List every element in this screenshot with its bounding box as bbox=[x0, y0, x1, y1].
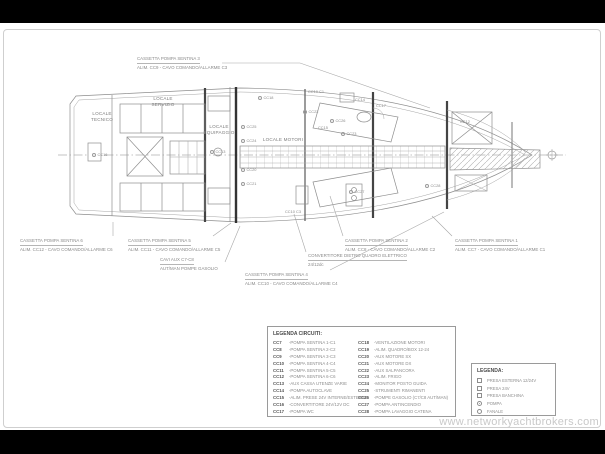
legend-circuits-column-2: CC18-VENTILAZIONE MOTORICC19-ALIM. QUADR… bbox=[358, 340, 454, 416]
circuit-code: CC16 bbox=[273, 402, 289, 407]
marker-label: CC18 bbox=[264, 95, 274, 100]
marker-circle-icon bbox=[303, 110, 307, 114]
circuit-code: CC21 bbox=[358, 361, 374, 366]
circuit-description: -POMPA SENTINA 2-C2 bbox=[289, 347, 335, 352]
circuit-description: -MONITOR POSTO GUIDA bbox=[374, 381, 427, 386]
callout-cavi-aux: CAVI AUX C7-C8 AUT/MAN POMPE GASOLIO bbox=[160, 256, 218, 273]
callout-sentina-1: CASSETTA POMPA SENTINA 1 ALIM. CC7 - CAV… bbox=[455, 237, 545, 254]
circuit-description: -ALIM. PRESE 24V INTERNE/ESTERNE bbox=[289, 395, 368, 400]
marker-circle-icon bbox=[241, 139, 245, 143]
callout-sentina-4: CASSETTA POMPA SENTINA 4 ALIM. CC10 - CA… bbox=[245, 271, 338, 288]
legend-circuit-row: CC7-POMPA SENTINA 1-C1 bbox=[273, 340, 353, 347]
circuit-code: CC20 bbox=[358, 354, 374, 359]
legend-circuits-title: LEGENDA CIRCUITI: bbox=[273, 331, 322, 337]
circuit-marker: CC18 bbox=[258, 95, 273, 100]
callout-title: CASSETTA POMPA SENTINA 4 bbox=[245, 271, 308, 280]
marker-label: CC15 bbox=[318, 125, 328, 130]
circuit-code: CC11 bbox=[273, 368, 289, 373]
circuit-description: -AUX CASSA UTENZE VARIE bbox=[289, 381, 347, 386]
circuit-description: -VENTILAZIONE MOTORI bbox=[374, 340, 425, 345]
circuit-description: -ALIM. FRIGO bbox=[374, 374, 401, 379]
watermark-text: www.networkyachtbrokers.com bbox=[439, 416, 599, 428]
circuit-code: CC13 bbox=[273, 381, 289, 386]
legend-symbols-rows: PRESA ESTERNA 12/24VPRESA 24VPRESA BANCH… bbox=[477, 377, 553, 415]
circuit-description: -AUX SALPANCORA bbox=[374, 368, 415, 373]
circuit-marker: CC28 bbox=[425, 183, 440, 188]
circuit-code: CC14 bbox=[273, 388, 289, 393]
circuit-code: CC17 bbox=[273, 409, 289, 414]
marker-circle-icon bbox=[349, 190, 353, 194]
circuit-marker: CC25 bbox=[241, 124, 256, 129]
square-symbol-icon bbox=[477, 378, 482, 383]
legend-symbols-title: LEGENDA: bbox=[477, 368, 503, 374]
marker-label: CC27 bbox=[355, 189, 365, 194]
room-label-locale-equipaggio: LOCALE EQUIPAGGIO bbox=[200, 124, 238, 136]
circuit-description: -POMPA WC bbox=[289, 409, 314, 414]
legend-circuit-row: CC17-POMPA WC bbox=[273, 409, 353, 416]
circuit-description: -AUX MOTORE DX bbox=[374, 361, 411, 366]
legend-symbol-row: PRESA BANCHINA bbox=[477, 392, 553, 400]
circuit-description: -POMPA SENTINA 1-C1 bbox=[289, 340, 335, 345]
legend-circuit-row: CC18-VENTILAZIONE MOTORI bbox=[358, 340, 454, 347]
circuit-description: -POMPE GASOLIO (C7/C8 AUT/MAN) bbox=[374, 395, 448, 400]
marker-circle-icon bbox=[92, 153, 96, 157]
circuit-marker: CC17 bbox=[376, 103, 386, 108]
marker-label: CC16 bbox=[98, 152, 108, 157]
legend-symbol-row: POMPA bbox=[477, 400, 553, 408]
circuit-marker: CC15 bbox=[318, 125, 328, 130]
legend-circuit-row: CC12-POMPA SENTINA 6-C6 bbox=[273, 374, 353, 381]
callout-title: CASSETTA POMPA SENTINA 1 bbox=[455, 237, 518, 246]
callout-title: CASSETTA POMPA SENTINA 6 bbox=[20, 237, 83, 246]
callout-detail: ALIM. CC10 - CAVO COMANDO/ALLARME C4 bbox=[245, 280, 338, 287]
callout-title: CASSETTA POMPA SENTINA 5 bbox=[128, 237, 191, 246]
callout-sentina-5: CASSETTA POMPA SENTINA 5 ALIM. CC11 - CA… bbox=[128, 237, 220, 254]
callout-title: CASSETTA POMPA SENTINA 3 bbox=[137, 55, 200, 64]
callout-sentina-3: CASSETTA POMPA SENTINA 3 ALIM. CC9 - CAV… bbox=[137, 55, 227, 72]
circle-symbol-icon bbox=[477, 409, 482, 414]
circuit-code: CC12 bbox=[273, 374, 289, 379]
legend-circuit-row: CC14-POMPA AUTOCLAVE bbox=[273, 388, 353, 395]
square-symbol-icon bbox=[477, 386, 482, 391]
circuit-code: CC9 bbox=[273, 354, 289, 359]
symbol-label: FANALE bbox=[487, 409, 503, 414]
circuit-marker: CC14 bbox=[355, 97, 365, 102]
callout-detail: ALIM. CC8 - CAVO COMANDO/ALLARME C2 bbox=[345, 246, 435, 253]
circuit-code: CC10 bbox=[273, 361, 289, 366]
marker-circle-icon bbox=[241, 168, 245, 172]
circuit-code: CC22 bbox=[358, 368, 374, 373]
legend-circuit-row: CC27-POMPA ANTINCENDIO bbox=[358, 402, 454, 409]
pump-symbol-icon bbox=[477, 401, 482, 406]
legend-circuit-row: CC25-STRUMENTI RIMANENTI bbox=[358, 388, 454, 395]
callout-sentina-6: CASSETTA POMPA SENTINA 6 ALIM. CC12 - CA… bbox=[20, 237, 113, 254]
circuit-code: CC27 bbox=[358, 402, 374, 407]
legend-circuit-row: CC19-ALIM. QUADRO/BOX 12-24 bbox=[358, 347, 454, 354]
callout-sentina-2: CASSETTA POMPA SENTINA 2 ALIM. CC8 - CAV… bbox=[345, 237, 435, 254]
legend-symbol-row: FANALE bbox=[477, 407, 553, 415]
circuit-marker: CC26 bbox=[330, 118, 345, 123]
marker-label: CC23 bbox=[347, 131, 357, 136]
circuit-description: -ALIM. QUADRO/BOX 12-24 bbox=[374, 347, 429, 352]
marker-label: CC10 C3 bbox=[285, 209, 301, 214]
circuit-marker: CC27 bbox=[349, 189, 364, 194]
legend-circuit-row: CC20-AUX MOTORE SX bbox=[358, 354, 454, 361]
marker-label: CC19 C1 bbox=[308, 89, 324, 94]
callout-detail: ALIM. CC11 - CAVO COMANDO/ALLARME C5 bbox=[128, 246, 220, 253]
marker-circle-icon bbox=[241, 182, 245, 186]
marker-label: CC26 bbox=[336, 118, 346, 123]
callout-detail: AUT/MAN POMPE GASOLIO bbox=[160, 265, 218, 272]
circuit-description: -POMPA SENTINA 4-C4 bbox=[289, 361, 335, 366]
circuit-code: CC7 bbox=[273, 340, 289, 345]
marker-label: CC22 bbox=[309, 109, 319, 114]
marker-circle-icon bbox=[341, 132, 345, 136]
legend-circuit-row: CC28-POMPA LAVAGGIO CATENA bbox=[358, 409, 454, 416]
callout-title: CAVI AUX C7-C8 bbox=[160, 256, 194, 265]
room-label-locale-servizio: LOCALE SERVIZIO bbox=[146, 96, 180, 108]
callout-detail: 24/12dc bbox=[308, 261, 407, 268]
marker-label: CC28 bbox=[431, 183, 441, 188]
circuit-description: -POMPA AUTOCLAVE bbox=[289, 388, 332, 393]
circuit-marker: CC24 bbox=[241, 138, 256, 143]
marker-label: CC14 bbox=[355, 97, 365, 102]
circuit-description: -POMPA SENTINA 5-C5 bbox=[289, 368, 335, 373]
symbol-label: PRESA BANCHINA bbox=[487, 393, 524, 398]
legend-circuit-row: CC8-POMPA SENTINA 2-C2 bbox=[273, 347, 353, 354]
legend-circuit-row: CC16-CONVERTITORE 24V/12V DC bbox=[273, 402, 353, 409]
legend-circuit-row: CC13-AUX CASSA UTENZE VARIE bbox=[273, 381, 353, 388]
legend-circuits-column-1: CC7-POMPA SENTINA 1-C1CC8-POMPA SENTINA … bbox=[273, 340, 353, 416]
marker-label: CC24 bbox=[247, 138, 257, 143]
letterbox-top bbox=[0, 0, 605, 23]
marker-label: CC12 bbox=[460, 119, 470, 124]
circuit-code: CC24 bbox=[358, 381, 374, 386]
circuit-code: CC8 bbox=[273, 347, 289, 352]
circuit-description: -CONVERTITORE 24V/12V DC bbox=[289, 402, 350, 407]
legend-circuit-row: CC9-POMPA SENTINA 3-C3 bbox=[273, 354, 353, 361]
marker-circle-icon bbox=[210, 150, 214, 154]
marker-circle-icon bbox=[258, 96, 262, 100]
callout-title: CASSETTA POMPA SENTINA 2 bbox=[345, 237, 408, 246]
legend-circuit-row: CC23-ALIM. FRIGO bbox=[358, 374, 454, 381]
legend-circuit-row: CC24-MONITOR POSTO GUIDA bbox=[358, 381, 454, 388]
callout-detail: ALIM. CC12 - CAVO COMANDO/ALLARME C6 bbox=[20, 246, 113, 253]
circuit-description: -POMPA ANTINCENDIO bbox=[374, 402, 421, 407]
room-label-locale-motori: LOCALE MOTORI bbox=[248, 137, 318, 143]
circuit-description: -POMPA SENTINA 3-C3 bbox=[289, 354, 335, 359]
legend-circuit-row: CC26-POMPE GASOLIO (C7/C8 AUT/MAN) bbox=[358, 395, 454, 402]
legend-circuit-row: CC22-AUX SALPANCORA bbox=[358, 368, 454, 375]
circuit-marker: CC13 bbox=[210, 149, 225, 154]
marker-circle-icon bbox=[330, 119, 334, 123]
symbol-label: POMPA bbox=[487, 401, 502, 406]
callout-convertitore: CONVERTITORE DIETRO QUADRO ELETTRICO 24/… bbox=[308, 252, 407, 269]
circuit-code: CC15 bbox=[273, 395, 289, 400]
legend-symbol-row: PRESA ESTERNA 12/24V bbox=[477, 377, 553, 385]
circuit-marker: CC16 bbox=[92, 152, 107, 157]
callout-detail: ALIM. CC7 - CAVO COMANDO/ALLARME C1 bbox=[455, 246, 545, 253]
circuit-marker: CC10 C3 bbox=[285, 209, 301, 214]
circuit-marker: CC20 bbox=[241, 167, 256, 172]
symbol-label: PRESA ESTERNA 12/24V bbox=[487, 378, 536, 383]
legend-symbols-box: LEGENDA: PRESA ESTERNA 12/24VPRESA 24VPR… bbox=[471, 363, 556, 416]
circuit-description: -AUX MOTORE SX bbox=[374, 354, 411, 359]
circuit-description: -STRUMENTI RIMANENTI bbox=[374, 388, 425, 393]
circuit-marker: CC23 bbox=[341, 131, 356, 136]
square-symbol-icon bbox=[477, 393, 482, 398]
marker-label: CC20 bbox=[247, 167, 257, 172]
circuit-code: CC19 bbox=[358, 347, 374, 352]
circuit-code: CC26 bbox=[358, 395, 374, 400]
circuit-code: CC18 bbox=[358, 340, 374, 345]
circuit-description: -POMPA LAVAGGIO CATENA bbox=[374, 409, 431, 414]
room-label-locale-tecnico: LOCALE TECNICO bbox=[86, 111, 118, 123]
marker-circle-icon bbox=[241, 125, 245, 129]
marker-circle-icon bbox=[425, 184, 429, 188]
screenshot-frame: LOCALE TECNICO LOCALE SERVIZIO LOCALE EQ… bbox=[0, 0, 605, 454]
marker-label: CC17 bbox=[376, 103, 386, 108]
circuit-marker: CC22 bbox=[303, 109, 318, 114]
callout-detail: ALIM. CC9 - CAVO COMANDO/ALLARME C3 bbox=[137, 64, 227, 71]
legend-circuit-row: CC15-ALIM. PRESE 24V INTERNE/ESTERNE bbox=[273, 395, 353, 402]
marker-label: CC13 bbox=[216, 149, 226, 154]
legend-circuit-row: CC10-POMPA SENTINA 4-C4 bbox=[273, 361, 353, 368]
legend-circuits-box: LEGENDA CIRCUITI: CC7-POMPA SENTINA 1-C1… bbox=[267, 326, 456, 417]
legend-symbol-row: PRESA 24V bbox=[477, 385, 553, 393]
circuit-code: CC23 bbox=[358, 374, 374, 379]
marker-label: CC25 bbox=[247, 124, 257, 129]
circuit-code: CC25 bbox=[358, 388, 374, 393]
legend-circuit-row: CC21-AUX MOTORE DX bbox=[358, 361, 454, 368]
circuit-description: -POMPA SENTINA 6-C6 bbox=[289, 374, 335, 379]
circuit-marker: CC21 bbox=[241, 181, 256, 186]
symbol-label: PRESA 24V bbox=[487, 386, 510, 391]
marker-label: CC21 bbox=[247, 181, 257, 186]
letterbox-bottom bbox=[0, 430, 605, 454]
circuit-marker: CC12 bbox=[460, 119, 470, 124]
circuit-code: CC28 bbox=[358, 409, 374, 414]
legend-circuit-row: CC11-POMPA SENTINA 5-C5 bbox=[273, 368, 353, 375]
circuit-marker: CC19 C1 bbox=[308, 89, 324, 94]
